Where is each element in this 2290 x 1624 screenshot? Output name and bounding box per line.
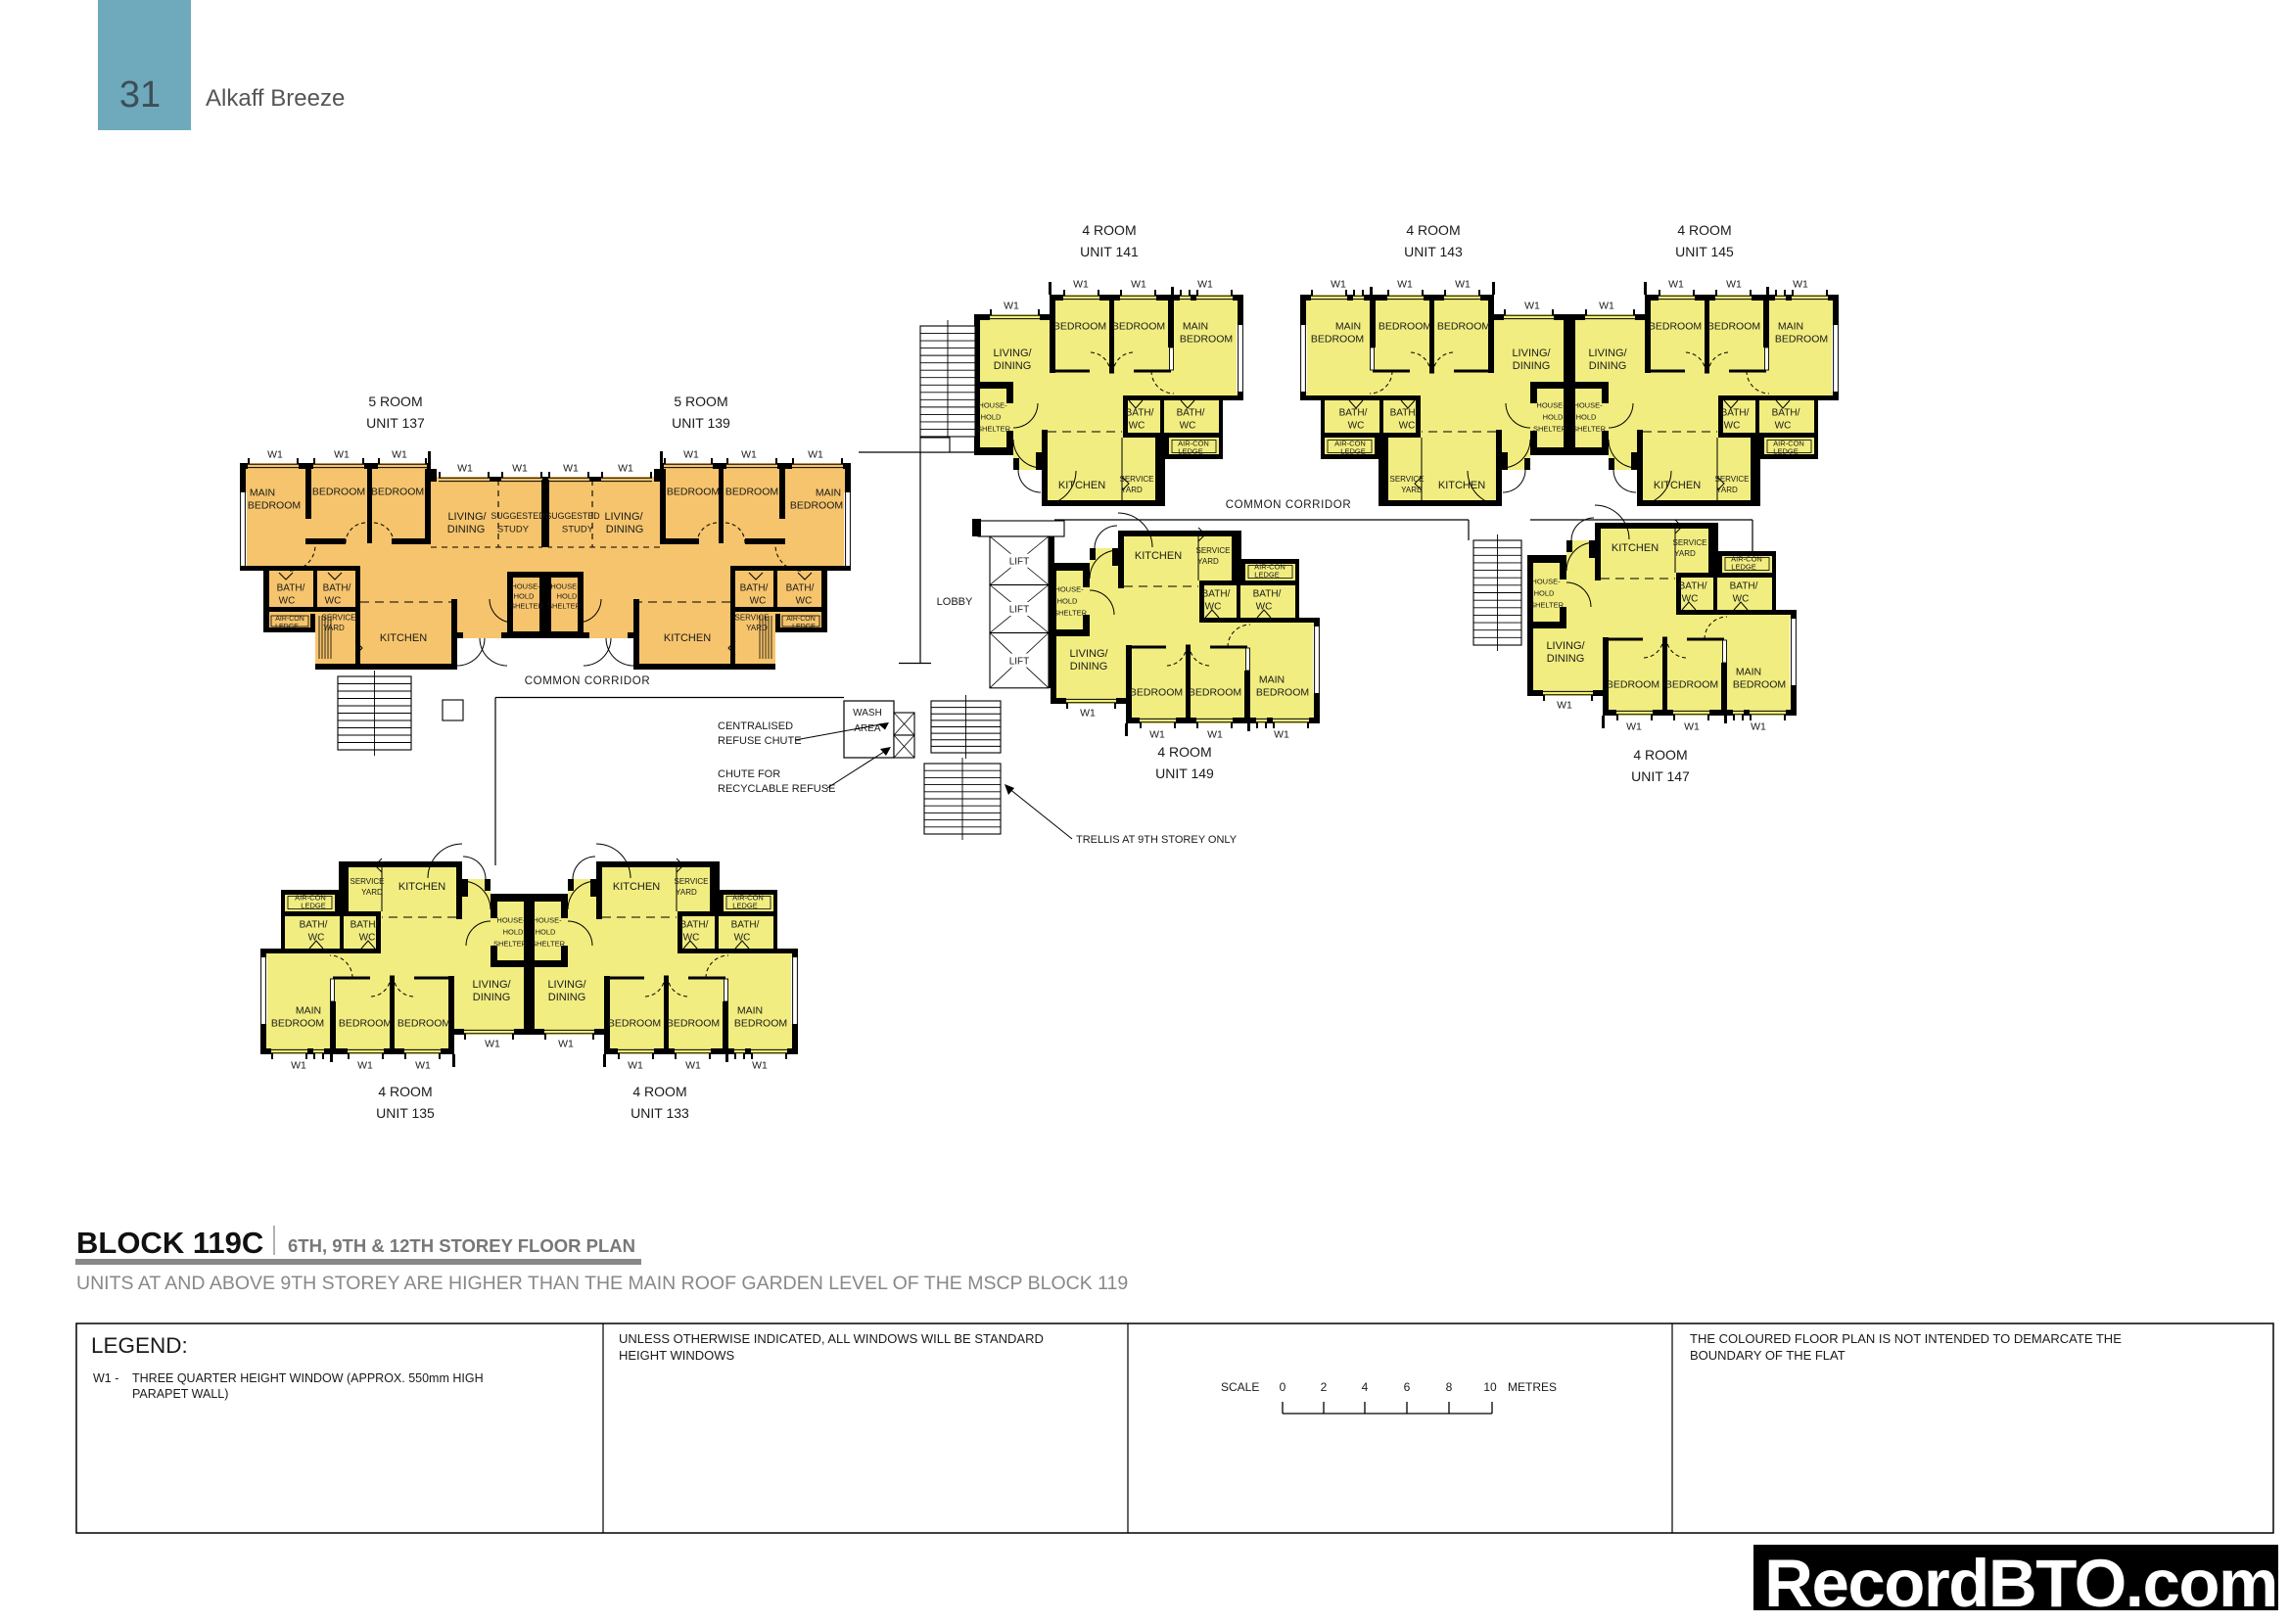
svg-text:KITCHEN: KITCHEN	[380, 632, 427, 644]
svg-text:WC: WC	[1724, 421, 1741, 432]
svg-text:W1: W1	[1793, 279, 1808, 291]
svg-text:W1: W1	[1073, 279, 1089, 291]
svg-text:YARD: YARD	[676, 888, 697, 897]
svg-text:W1: W1	[1197, 279, 1213, 291]
svg-text:LEDGE: LEDGE	[1254, 571, 1279, 580]
svg-text:WC: WC	[750, 596, 767, 607]
svg-text:SHELTER: SHELTER	[547, 602, 582, 611]
svg-text:UNIT 141: UNIT 141	[1080, 244, 1139, 259]
svg-text:W1: W1	[563, 463, 579, 475]
svg-text:AIR-CON: AIR-CON	[786, 616, 816, 623]
svg-text:BEDROOM: BEDROOM	[397, 1018, 450, 1030]
svg-text:MAIN: MAIN	[1778, 321, 1803, 333]
svg-text:SERVICE: SERVICE	[1715, 475, 1750, 484]
svg-text:BATH/: BATH/	[1390, 408, 1419, 419]
svg-text:SERVICE: SERVICE	[322, 613, 356, 622]
svg-text:WC: WC	[1180, 421, 1196, 432]
svg-text:HOLD: HOLD	[1543, 413, 1564, 422]
svg-text:W1: W1	[1668, 279, 1684, 291]
svg-text:W1: W1	[1207, 729, 1223, 741]
svg-text:WC: WC	[1682, 594, 1699, 605]
svg-text:5 ROOM: 5 ROOM	[674, 394, 727, 409]
svg-text:DINING: DINING	[994, 360, 1032, 372]
svg-text:UNIT 137: UNIT 137	[366, 415, 425, 431]
svg-text:BLOCK 119C: BLOCK 119C	[76, 1226, 263, 1260]
svg-text:BOUNDARY OF THE FLAT: BOUNDARY OF THE FLAT	[1690, 1348, 1846, 1363]
svg-text:BEDROOM: BEDROOM	[734, 1018, 787, 1030]
svg-text:BEDROOM: BEDROOM	[1311, 334, 1364, 346]
svg-text:BEDROOM: BEDROOM	[1180, 334, 1233, 346]
svg-text:SUGGESTED: SUGGESTED	[545, 511, 599, 521]
svg-text:UNIT 145: UNIT 145	[1675, 244, 1734, 259]
svg-text:MAIN: MAIN	[1335, 321, 1361, 333]
svg-text:COMMON CORRIDOR: COMMON CORRIDOR	[525, 675, 650, 687]
svg-text:BATH/: BATH/	[1772, 408, 1800, 419]
svg-text:BATH/: BATH/	[1339, 408, 1368, 419]
svg-text:LOBBY: LOBBY	[937, 596, 973, 608]
svg-text:BEDROOM: BEDROOM	[1775, 334, 1828, 346]
svg-text:KITCHEN: KITCHEN	[613, 881, 660, 893]
svg-text:REFUSE CHUTE: REFUSE CHUTE	[718, 735, 802, 747]
svg-text:DINING: DINING	[606, 524, 644, 535]
svg-text:WC: WC	[1399, 421, 1416, 432]
svg-text:BEDROOM: BEDROOM	[1189, 687, 1241, 699]
svg-text:HOLD: HOLD	[503, 928, 524, 937]
svg-text:W1: W1	[1726, 279, 1742, 291]
svg-text:4: 4	[1362, 1380, 1369, 1394]
svg-text:BEDROOM: BEDROOM	[1437, 321, 1490, 333]
svg-text:W1: W1	[1599, 301, 1614, 312]
svg-text:LEDGE: LEDGE	[1178, 447, 1202, 456]
svg-text:4 ROOM: 4 ROOM	[1677, 222, 1731, 238]
svg-text:HOLD: HOLD	[536, 928, 556, 937]
svg-text:UNIT 133: UNIT 133	[631, 1105, 689, 1121]
svg-text:WC: WC	[683, 933, 700, 944]
svg-text:W1: W1	[685, 1060, 701, 1072]
svg-text:UNIT 147: UNIT 147	[1631, 768, 1690, 784]
svg-text:UNIT 139: UNIT 139	[672, 415, 730, 431]
svg-text:BEDROOM: BEDROOM	[1707, 321, 1760, 333]
svg-text:SHELTER: SHELTER	[532, 940, 566, 949]
svg-text:WC: WC	[359, 933, 376, 944]
svg-text:HOUSE-: HOUSE-	[978, 401, 1007, 410]
svg-text:YARD: YARD	[746, 624, 768, 632]
svg-text:SUGGESTED: SUGGESTED	[491, 511, 544, 521]
svg-text:HOLD: HOLD	[514, 592, 535, 601]
svg-text:SERVICE: SERVICE	[1673, 538, 1707, 547]
svg-text:BATH/: BATH/	[1253, 589, 1282, 600]
svg-text:SERVICE: SERVICE	[1196, 546, 1231, 555]
svg-text:YARD: YARD	[1121, 486, 1143, 494]
svg-text:SHELTER: SHELTER	[1533, 425, 1567, 434]
svg-text:WASH: WASH	[853, 708, 882, 719]
svg-text:BEDROOM: BEDROOM	[1112, 321, 1165, 333]
svg-text:W1: W1	[1131, 279, 1146, 291]
svg-text:W1: W1	[752, 1060, 768, 1072]
svg-text:CENTRALISED: CENTRALISED	[718, 720, 793, 732]
svg-text:METRES: METRES	[1508, 1380, 1557, 1394]
svg-text:LIVING/: LIVING/	[1588, 348, 1627, 359]
svg-text:STUDY: STUDY	[497, 524, 530, 534]
svg-text:LIVING/: LIVING/	[1512, 348, 1551, 359]
svg-text:W1: W1	[1684, 721, 1700, 733]
svg-text:BEDROOM: BEDROOM	[339, 1018, 392, 1030]
svg-text:KITCHEN: KITCHEN	[1438, 480, 1485, 491]
svg-text:BEDROOM: BEDROOM	[271, 1018, 324, 1030]
svg-text:MAIN: MAIN	[816, 487, 841, 499]
svg-text:4 ROOM: 4 ROOM	[1157, 744, 1211, 760]
svg-text:W1: W1	[808, 449, 823, 461]
svg-text:KITCHEN: KITCHEN	[1135, 550, 1182, 562]
svg-text:KITCHEN: KITCHEN	[1058, 480, 1105, 491]
svg-text:BEDROOM: BEDROOM	[608, 1018, 661, 1030]
svg-text:MAIN: MAIN	[250, 487, 275, 499]
svg-text:MAIN: MAIN	[1736, 667, 1761, 678]
svg-text:LIFT: LIFT	[1009, 656, 1030, 667]
svg-text:BEDROOM: BEDROOM	[1256, 687, 1309, 699]
svg-text:4 ROOM: 4 ROOM	[378, 1084, 432, 1099]
svg-text:SHELTER: SHELTER	[977, 425, 1011, 434]
svg-text:YARD: YARD	[1401, 486, 1423, 494]
svg-text:KITCHEN: KITCHEN	[1654, 480, 1701, 491]
svg-text:0: 0	[1280, 1380, 1286, 1394]
svg-text:BEDROOM: BEDROOM	[790, 500, 843, 512]
svg-text:YARD: YARD	[1197, 557, 1219, 566]
svg-text:W1: W1	[1274, 729, 1289, 741]
svg-text:W1: W1	[1524, 301, 1540, 312]
svg-text:HOLD: HOLD	[1534, 589, 1555, 598]
svg-text:4 ROOM: 4 ROOM	[1082, 222, 1136, 238]
svg-text:KITCHEN: KITCHEN	[664, 632, 711, 644]
svg-text:W1: W1	[267, 449, 283, 461]
svg-text:HOLD: HOLD	[1057, 597, 1078, 606]
svg-text:PARAPET WALL): PARAPET WALL)	[132, 1387, 228, 1401]
svg-text:STUDY: STUDY	[562, 524, 594, 534]
svg-text:LIFT: LIFT	[1009, 556, 1030, 567]
svg-text:BEDROOM: BEDROOM	[1607, 679, 1659, 691]
svg-text:BATH/: BATH/	[740, 583, 769, 594]
svg-text:W1: W1	[1080, 708, 1096, 719]
svg-text:W1: W1	[1004, 301, 1019, 312]
svg-text:LIFT: LIFT	[1009, 605, 1030, 616]
svg-text:WC: WC	[1205, 602, 1222, 613]
svg-text:BEDROOM: BEDROOM	[725, 487, 778, 498]
svg-text:RecordBTO.com: RecordBTO.com	[1764, 1546, 2277, 1619]
svg-text:YARD: YARD	[323, 624, 345, 632]
svg-text:DINING: DINING	[1547, 653, 1585, 665]
svg-text:WC: WC	[796, 596, 813, 607]
svg-text:BATH/: BATH/	[731, 920, 760, 931]
svg-text:4 ROOM: 4 ROOM	[1406, 222, 1460, 238]
svg-text:SHELTER: SHELTER	[510, 602, 544, 611]
svg-text:HOUSE-: HOUSE-	[496, 916, 526, 925]
svg-text:6TH, 9TH & 12TH STOREY FLOOR P: 6TH, 9TH & 12TH STOREY FLOOR PLAN	[288, 1235, 635, 1256]
svg-text:BEDROOM: BEDROOM	[1130, 687, 1183, 699]
svg-text:BATH/: BATH/	[277, 583, 305, 594]
svg-text:W1: W1	[1331, 279, 1346, 291]
svg-text:BEDROOM: BEDROOM	[312, 487, 365, 498]
svg-text:LIVING/: LIVING/	[547, 979, 586, 991]
svg-text:W1: W1	[1149, 729, 1165, 741]
svg-text:W1: W1	[1626, 721, 1642, 733]
svg-text:LIVING/: LIVING/	[447, 511, 487, 523]
svg-text:BATH/: BATH/	[300, 920, 328, 931]
svg-text:LEDGE: LEDGE	[275, 624, 299, 630]
svg-text:YARD: YARD	[1716, 486, 1738, 494]
svg-text:BATH/: BATH/	[351, 920, 379, 931]
svg-text:WC: WC	[734, 933, 751, 944]
svg-text:BEDROOM: BEDROOM	[1379, 321, 1431, 333]
svg-text:UNITS AT AND ABOVE 9TH STOREY: UNITS AT AND ABOVE 9TH STOREY ARE HIGHER…	[76, 1273, 1128, 1294]
svg-text:BATH/: BATH/	[680, 920, 709, 931]
svg-text:LEGEND:: LEGEND:	[91, 1333, 188, 1358]
svg-text:MAIN: MAIN	[296, 1005, 321, 1017]
svg-text:W1: W1	[741, 449, 757, 461]
svg-text:BEDROOM: BEDROOM	[371, 487, 424, 498]
svg-text:KITCHEN: KITCHEN	[398, 881, 445, 893]
svg-text:HOUSE-: HOUSE-	[1531, 578, 1561, 586]
svg-text:W1: W1	[334, 449, 350, 461]
svg-text:W1: W1	[357, 1060, 373, 1072]
svg-text:UNIT 135: UNIT 135	[376, 1105, 435, 1121]
svg-text:BATH/: BATH/	[1202, 589, 1231, 600]
svg-text:BATH/: BATH/	[1721, 408, 1750, 419]
svg-text:W1: W1	[1455, 279, 1471, 291]
svg-text:WC: WC	[1256, 602, 1273, 613]
svg-text:SERVICE: SERVICE	[1390, 475, 1425, 484]
svg-text:DINING: DINING	[1589, 360, 1627, 372]
svg-text:BEDROOM: BEDROOM	[667, 1018, 720, 1030]
svg-text:BEDROOM: BEDROOM	[1665, 679, 1718, 691]
svg-text:LEDGE: LEDGE	[1731, 563, 1755, 572]
svg-text:DINING: DINING	[548, 992, 586, 1003]
svg-text:LEDGE: LEDGE	[732, 902, 757, 910]
svg-text:YARD: YARD	[361, 888, 383, 897]
svg-text:LEDGE: LEDGE	[1340, 447, 1365, 456]
svg-text:W1: W1	[1397, 279, 1413, 291]
svg-text:COMMON CORRIDOR: COMMON CORRIDOR	[1226, 499, 1351, 511]
svg-text:HOUSE-: HOUSE-	[1054, 585, 1084, 594]
svg-text:MAIN: MAIN	[1259, 674, 1285, 686]
svg-text:SERVICE: SERVICE	[351, 877, 385, 886]
svg-text:BATH/: BATH/	[1126, 408, 1154, 419]
svg-text:DINING: DINING	[447, 524, 486, 535]
svg-text:DINING: DINING	[1513, 360, 1551, 372]
svg-text:THREE QUARTER HEIGHT WINDOW (A: THREE QUARTER HEIGHT WINDOW (APPROX. 550…	[132, 1371, 484, 1385]
svg-text:BATH/: BATH/	[1730, 581, 1758, 592]
svg-text:HOUSE-: HOUSE-	[511, 582, 540, 591]
svg-text:HOLD: HOLD	[557, 592, 578, 601]
svg-text:WC: WC	[1733, 594, 1750, 605]
svg-text:W1: W1	[1751, 721, 1766, 733]
svg-text:MAIN: MAIN	[737, 1005, 763, 1017]
svg-text:LIVING/: LIVING/	[604, 511, 643, 523]
svg-text:DINING: DINING	[473, 992, 511, 1003]
svg-text:LIVING/: LIVING/	[993, 348, 1032, 359]
svg-text:SCALE: SCALE	[1221, 1380, 1259, 1394]
svg-text:W1: W1	[415, 1060, 431, 1072]
svg-text:5 ROOM: 5 ROOM	[368, 394, 422, 409]
svg-text:W1: W1	[1557, 700, 1572, 712]
svg-text:BATH/: BATH/	[786, 583, 815, 594]
svg-text:WC: WC	[325, 596, 342, 607]
svg-text:BATH/: BATH/	[1679, 581, 1707, 592]
svg-text:HOLD: HOLD	[981, 413, 1002, 422]
svg-text:WC: WC	[279, 596, 296, 607]
svg-text:SERVICE: SERVICE	[735, 613, 770, 622]
svg-text:UNIT 149: UNIT 149	[1155, 766, 1214, 781]
svg-text:LIVING/: LIVING/	[1546, 640, 1585, 652]
svg-text:RECYCLABLE REFUSE: RECYCLABLE REFUSE	[718, 783, 835, 795]
svg-text:6: 6	[1404, 1380, 1411, 1394]
svg-text:WC: WC	[308, 933, 325, 944]
svg-text:BEDROOM: BEDROOM	[248, 500, 301, 512]
svg-text:TRELLIS AT 9TH STOREY ONLY: TRELLIS AT 9TH STOREY ONLY	[1076, 834, 1238, 846]
svg-text:BATH/: BATH/	[1177, 408, 1205, 419]
svg-text:LIVING/: LIVING/	[1069, 648, 1108, 660]
svg-text:4 ROOM: 4 ROOM	[632, 1084, 686, 1099]
svg-text:2: 2	[1321, 1380, 1328, 1394]
svg-text:CHUTE FOR: CHUTE FOR	[718, 768, 780, 780]
svg-text:W1: W1	[512, 463, 528, 475]
svg-text:SHELTER: SHELTER	[1530, 601, 1565, 610]
svg-text:W1: W1	[628, 1060, 643, 1072]
svg-text:BEDROOM: BEDROOM	[667, 487, 720, 498]
svg-text:31: 31	[119, 74, 161, 116]
svg-text:HOUSE-: HOUSE-	[1573, 401, 1603, 410]
svg-text:W1: W1	[618, 463, 633, 475]
svg-text:W1 -: W1 -	[93, 1371, 118, 1385]
svg-text:SERVICE: SERVICE	[1120, 475, 1154, 484]
svg-text:SERVICE: SERVICE	[675, 877, 709, 886]
svg-text:HOUSE-: HOUSE-	[533, 916, 562, 925]
svg-text:WC: WC	[1775, 421, 1792, 432]
svg-text:WC: WC	[1129, 421, 1145, 432]
svg-text:AIR-CON: AIR-CON	[275, 616, 304, 623]
svg-text:LEDGE: LEDGE	[1773, 447, 1798, 456]
svg-text:W1: W1	[485, 1039, 500, 1050]
svg-text:THE COLOURED FLOOR PLAN IS NOT: THE COLOURED FLOOR PLAN IS NOT INTENDED …	[1690, 1331, 2122, 1346]
svg-text:W1: W1	[558, 1039, 574, 1050]
svg-text:BEDROOM: BEDROOM	[1733, 679, 1786, 691]
svg-text:MAIN: MAIN	[1183, 321, 1208, 333]
svg-text:KITCHEN: KITCHEN	[1612, 542, 1659, 554]
svg-text:UNLESS OTHERWISE INDICATED, A: UNLESS OTHERWISE INDICATED, ALL WINDOWS …	[619, 1331, 1044, 1346]
svg-text:HOLD: HOLD	[1576, 413, 1597, 422]
svg-text:W1: W1	[291, 1060, 306, 1072]
svg-text:4 ROOM: 4 ROOM	[1633, 747, 1687, 763]
svg-text:W1: W1	[392, 449, 407, 461]
svg-text:BATH/: BATH/	[323, 583, 351, 594]
svg-text:LEDGE: LEDGE	[792, 624, 816, 630]
svg-text:8: 8	[1446, 1380, 1453, 1394]
svg-text:LEDGE: LEDGE	[301, 902, 325, 910]
svg-text:W1: W1	[683, 449, 699, 461]
svg-text:SHELTER: SHELTER	[493, 940, 528, 949]
svg-text:WC: WC	[1348, 421, 1365, 432]
svg-text:W1: W1	[457, 463, 473, 475]
svg-text:HEIGHT WINDOWS: HEIGHT WINDOWS	[619, 1348, 735, 1363]
svg-text:UNIT 143: UNIT 143	[1404, 244, 1463, 259]
svg-text:HOUSE-: HOUSE-	[550, 582, 580, 591]
svg-text:SHELTER: SHELTER	[1053, 609, 1088, 618]
svg-text:HOUSE-: HOUSE-	[1536, 401, 1566, 410]
svg-text:DINING: DINING	[1070, 661, 1108, 673]
svg-text:BEDROOM: BEDROOM	[1649, 321, 1702, 333]
svg-text:BEDROOM: BEDROOM	[1053, 321, 1106, 333]
svg-text:10: 10	[1483, 1380, 1497, 1394]
svg-text:LIVING/: LIVING/	[472, 979, 511, 991]
svg-text:SHELTER: SHELTER	[1572, 425, 1607, 434]
svg-text:Alkaff Breeze: Alkaff Breeze	[206, 85, 345, 112]
svg-text:YARD: YARD	[1674, 549, 1696, 558]
